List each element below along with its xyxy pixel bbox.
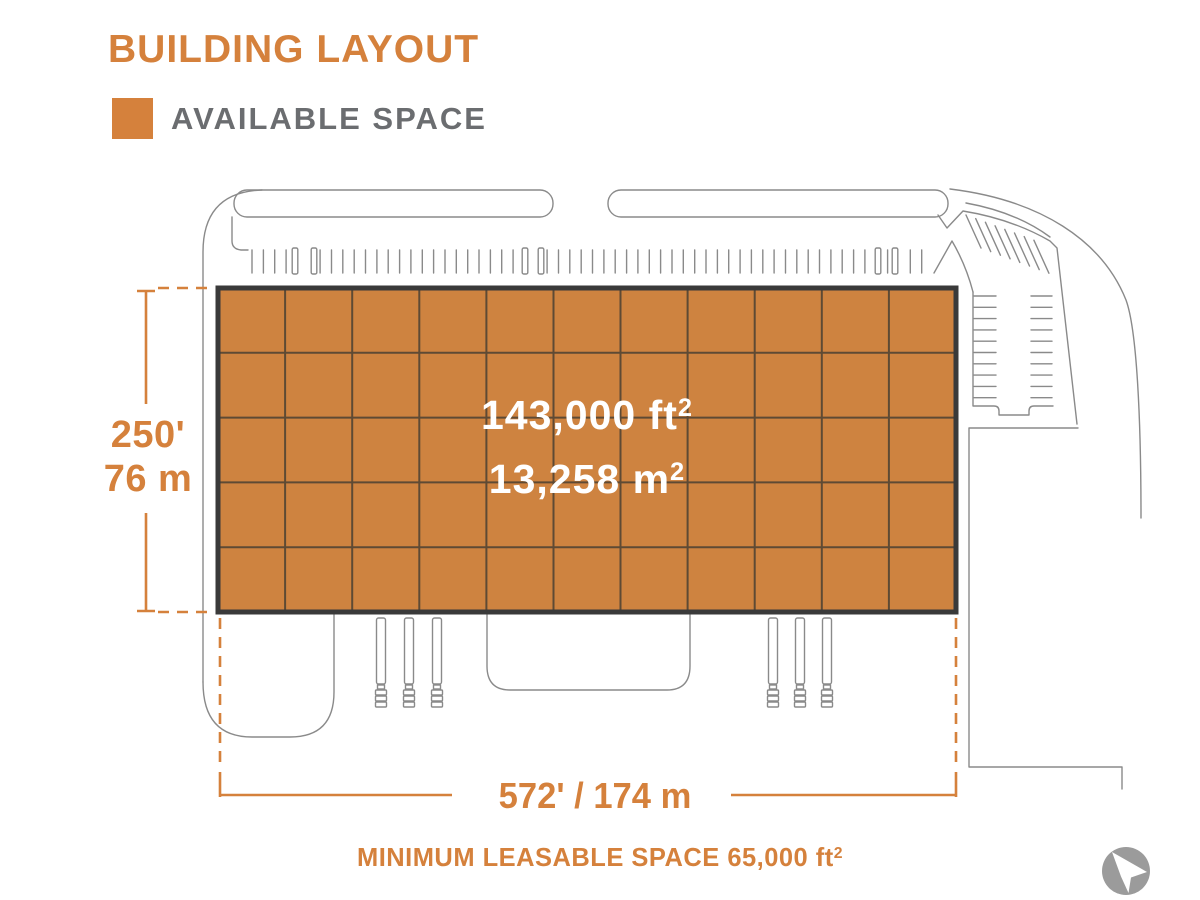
angled-tick-lines [966, 215, 1049, 273]
right-parking-bay-outline [973, 292, 1053, 415]
parking-column-post [522, 248, 528, 274]
truck-cab-bar [376, 696, 387, 701]
parking-island-right [608, 190, 948, 217]
truck-cab-bar [404, 696, 415, 701]
truck-hitch [824, 685, 831, 689]
area-sqft: 143,000 ft2 [481, 386, 693, 450]
truck-hitch [406, 685, 413, 689]
truck-trailer [377, 618, 386, 684]
truck-cab-bar [795, 696, 806, 701]
truck-cab-bar [768, 690, 779, 695]
parking-column-post [892, 248, 898, 274]
inner-arc-right [966, 203, 1050, 237]
angled-parking-ticks [966, 215, 1049, 273]
parking-column-post [311, 248, 317, 274]
truck [432, 618, 443, 707]
curb-notch-left [232, 217, 248, 250]
truck-cab-bar [795, 690, 806, 695]
depth-meters: 76 m [83, 457, 213, 501]
depth-dimension-label: 250' 76 m [83, 413, 213, 501]
truck-trailer [405, 618, 414, 684]
truck [822, 618, 833, 707]
truck-hitch [378, 685, 385, 689]
truck-trailer [796, 618, 805, 684]
truck-cab-bar [822, 702, 833, 707]
truck-cab-bar [404, 702, 415, 707]
truck [376, 618, 387, 707]
truck [404, 618, 415, 707]
parking-tick-lines [252, 250, 922, 273]
truck-cab-bar [376, 690, 387, 695]
truck-hitch [797, 685, 804, 689]
brand-logo [1100, 845, 1152, 897]
bay-tick-lines [974, 296, 1052, 398]
truck-cab-bar [795, 702, 806, 707]
width-dimension-label: 572' / 174 m [461, 775, 730, 817]
truck-cab-bar [432, 696, 443, 701]
width-extension-lines [220, 618, 956, 770]
parking-island-left [234, 190, 553, 217]
truck-cab-bar [432, 690, 443, 695]
truck-cab-bar [768, 696, 779, 701]
truck-cab-bar [768, 702, 779, 707]
area-sqm: 13,258 m2 [489, 450, 685, 514]
truck-cab-bar [822, 690, 833, 695]
truck [795, 618, 806, 707]
minimum-leasable-label: MINIMUM LEASABLE SPACE 65,000 ft2 [12, 842, 1188, 873]
truck-cab-bar [376, 702, 387, 707]
truck-trailer [823, 618, 832, 684]
truck [768, 618, 779, 707]
building-area-label: 143,000 ft2 13,258 m2 [218, 288, 956, 612]
depth-feet: 250' [83, 413, 213, 457]
truck-court-outline [487, 614, 690, 690]
truck-cab-bar [432, 702, 443, 707]
road-bottom-left-loop [203, 614, 334, 737]
angled-parking-curb [938, 211, 1077, 424]
parking-stall-ticks [252, 248, 922, 274]
truck-cab-bar [404, 690, 415, 695]
truck-trailer [769, 618, 778, 684]
curb-right-swoosh [934, 241, 973, 292]
truck-cab-bar [822, 696, 833, 701]
building-layout-infographic: BUILDING LAYOUT AVAILABLE SPACE [0, 0, 1200, 900]
parking-column-post [875, 248, 881, 274]
parking-column-post [292, 248, 298, 274]
loading-trucks [376, 618, 833, 707]
right-bay-parking-ticks [974, 296, 1052, 398]
truck-trailer [433, 618, 442, 684]
truck-hitch [770, 685, 777, 689]
parking-column-post [538, 248, 544, 274]
bottom-right-curbs [969, 428, 1122, 789]
truck-hitch [434, 685, 441, 689]
